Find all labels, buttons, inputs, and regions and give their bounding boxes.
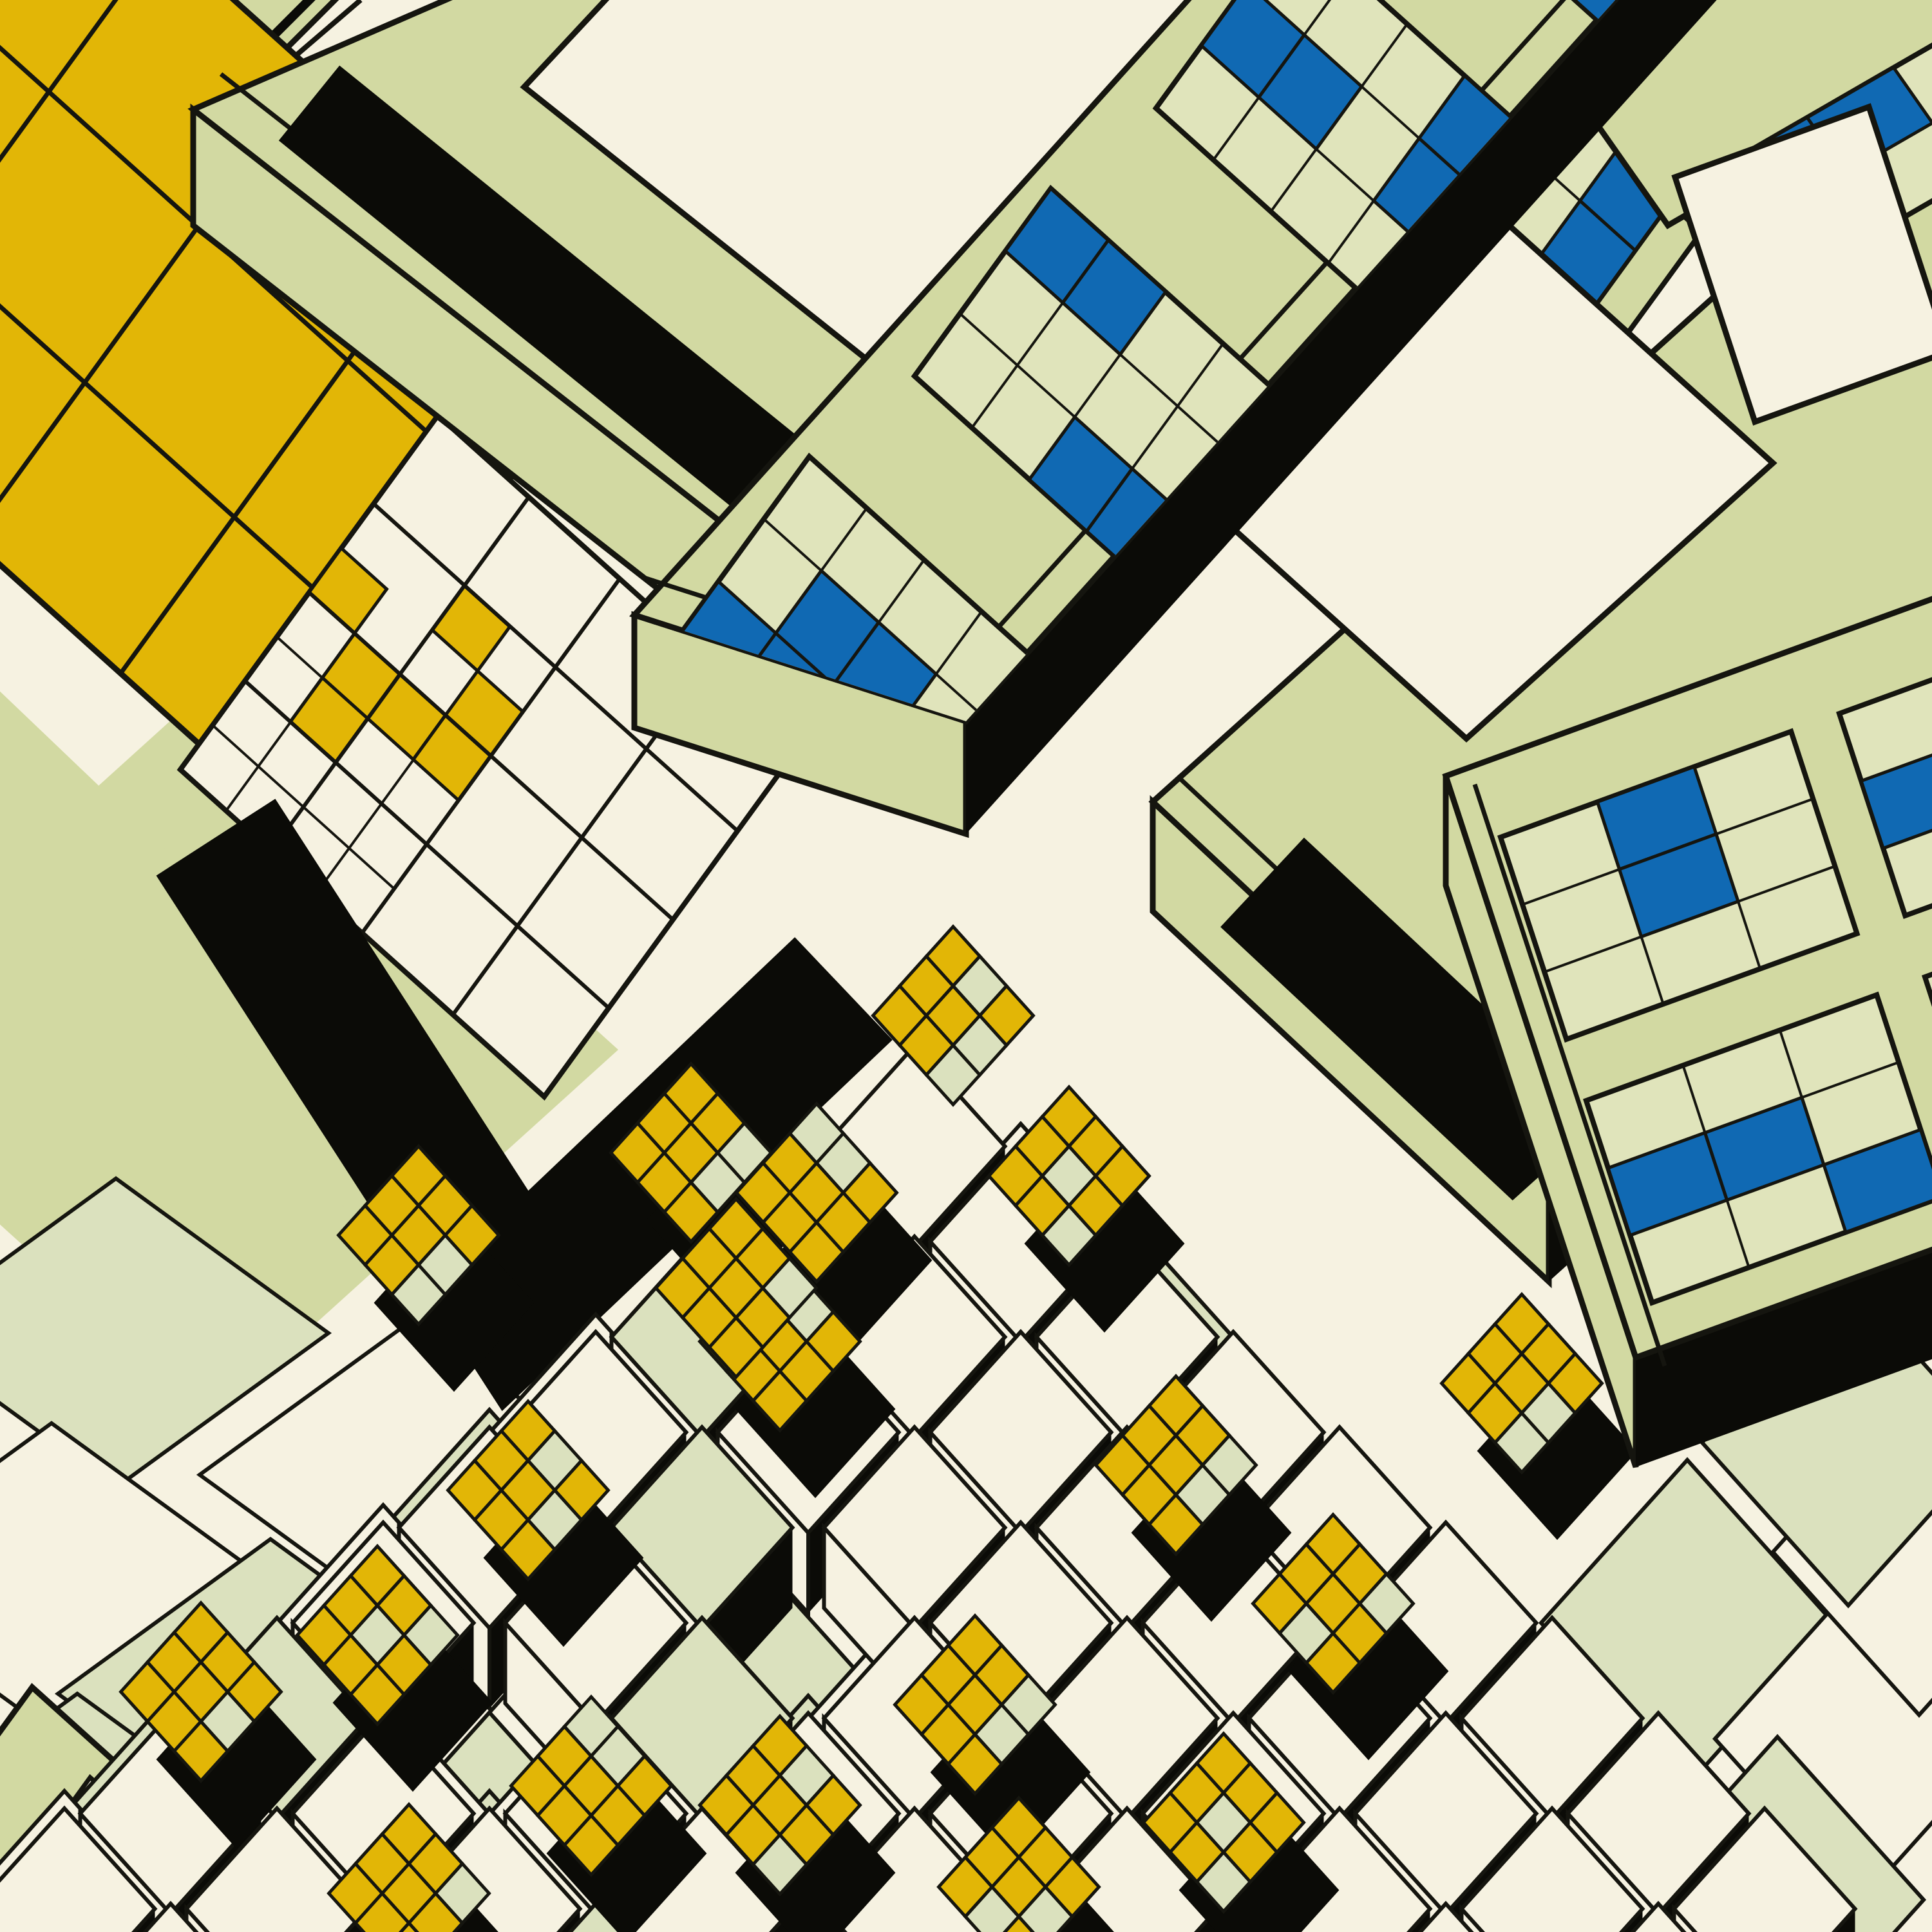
scene-canvas: [0, 0, 1932, 1932]
abstract-isometric-artwork: [0, 0, 1932, 1932]
